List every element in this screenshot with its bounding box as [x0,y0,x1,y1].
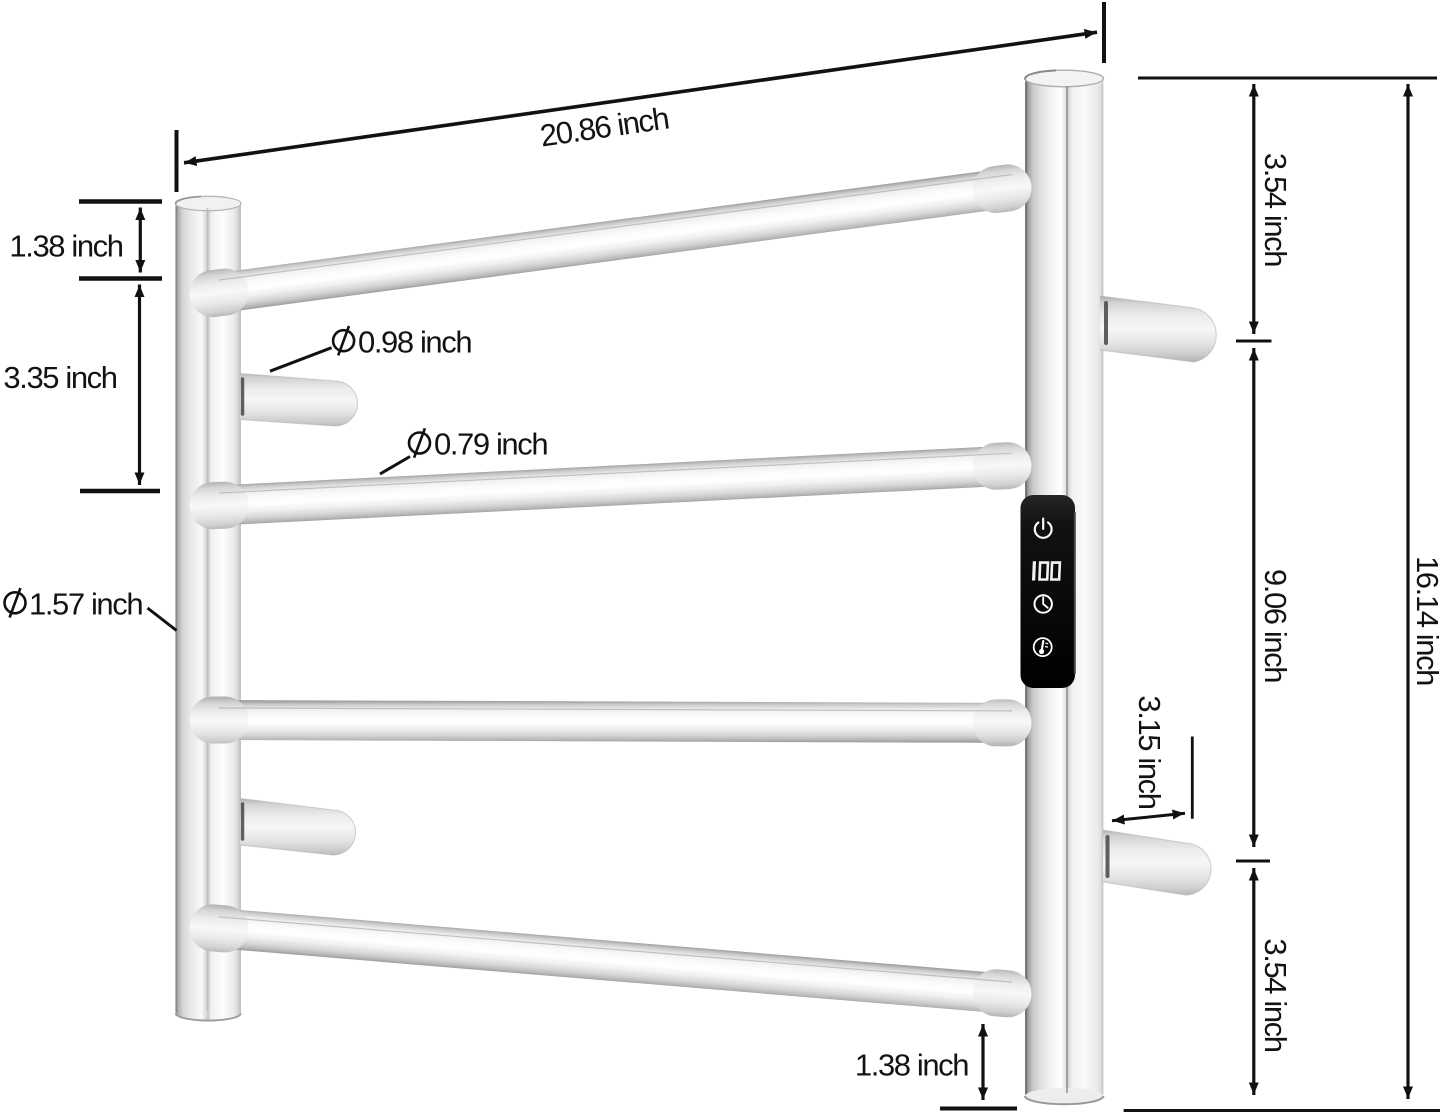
svg-text:0.79 inch: 0.79 inch [434,427,547,462]
svg-text:3.15 inch: 3.15 inch [1132,695,1167,808]
svg-text:1.38 inch: 1.38 inch [855,1048,968,1083]
svg-text:0.98 inch: 0.98 inch [358,324,471,359]
svg-text:3.35 inch: 3.35 inch [3,360,116,395]
svg-text:9.06 inch: 9.06 inch [1258,569,1293,682]
svg-text:1.38 inch: 1.38 inch [9,228,122,263]
svg-text:3.54 inch: 3.54 inch [1258,938,1293,1051]
svg-text:1.57 inch: 1.57 inch [29,587,142,622]
svg-text:16.14 inch: 16.14 inch [1410,556,1445,685]
svg-text:3.54 inch: 3.54 inch [1258,153,1293,266]
